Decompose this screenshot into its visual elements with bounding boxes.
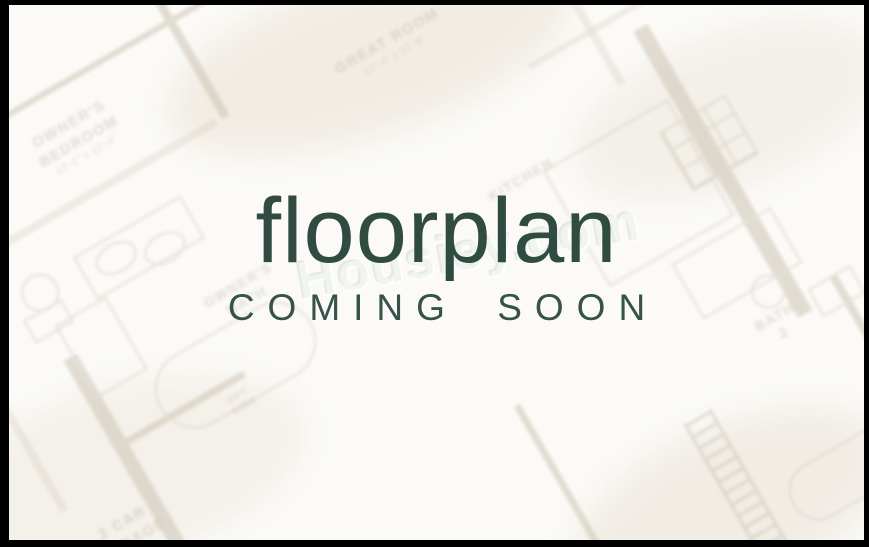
page-subtitle: COMING SOON: [215, 289, 658, 326]
headline-overlay: floorplan COMING SOON: [9, 5, 864, 523]
page-title: floorplan: [256, 185, 618, 277]
card-canvas: OWNER'S BEDROOM 12'-1" x 12'-4" GREAT RO…: [9, 5, 864, 540]
coming-soon-card: OWNER'S BEDROOM 12'-1" x 12'-4" GREAT RO…: [0, 0, 869, 547]
